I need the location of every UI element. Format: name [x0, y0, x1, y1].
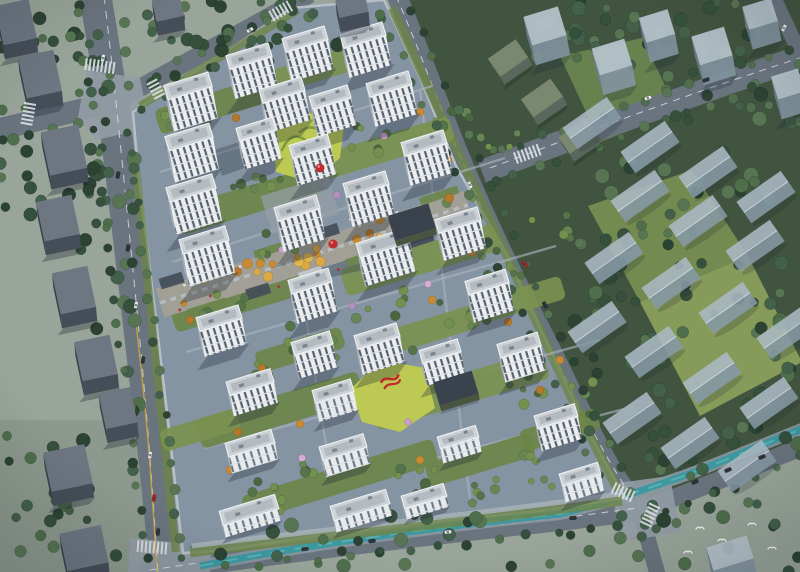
aerial-masterplan-render — [0, 0, 800, 572]
vignette-overlay — [0, 0, 800, 572]
aerial-render-canvas — [0, 0, 800, 572]
